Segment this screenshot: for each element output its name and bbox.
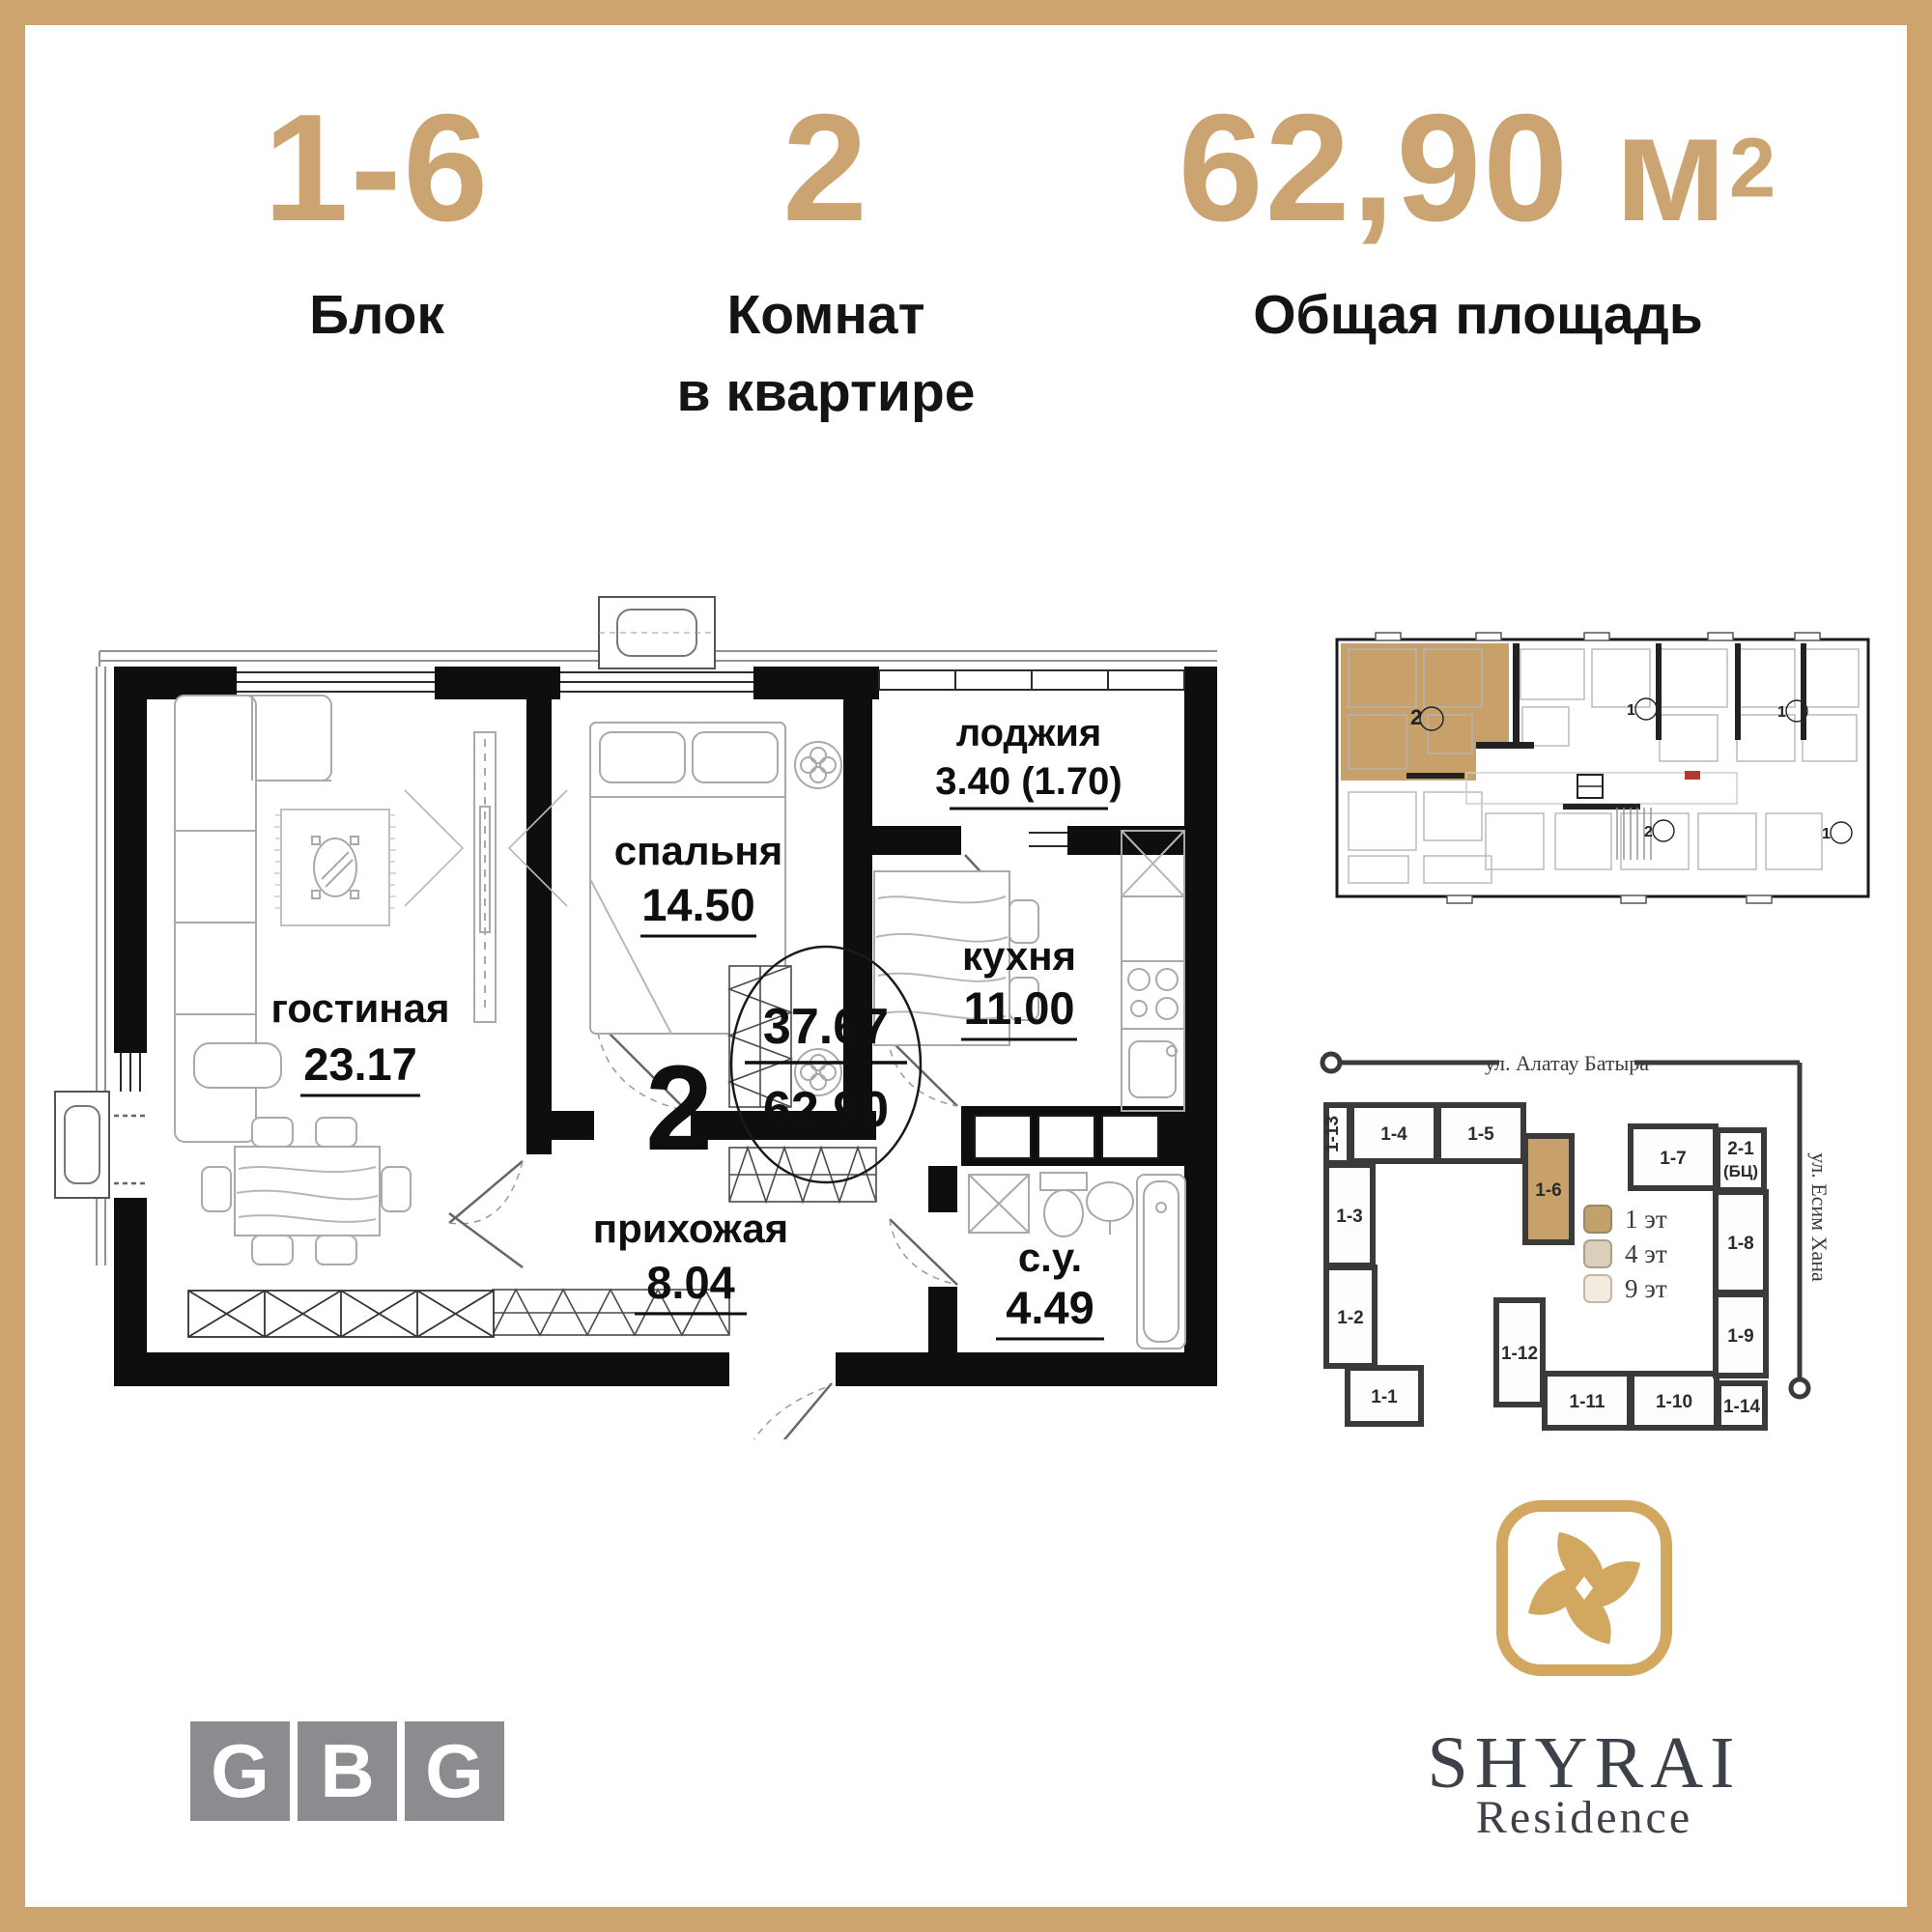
gbg-letter-g1: G — [190, 1721, 290, 1821]
svg-text:1: 1 — [1627, 702, 1635, 719]
svg-text:1-8: 1-8 — [1727, 1234, 1753, 1254]
loggia-name: лоджия — [956, 712, 1101, 754]
bathroom-name: с.у. — [1018, 1235, 1082, 1280]
legend-swatch-4 — [1584, 1240, 1611, 1267]
svg-text:1-2: 1-2 — [1337, 1308, 1363, 1328]
left-service-box — [55, 1092, 109, 1198]
svg-text:(БЦ): (БЦ) — [1723, 1162, 1758, 1180]
site-plan: ул. Алатау Батыра ул. Есим Хана 1-13 1-4… — [1294, 1043, 1893, 1439]
bedroom-name: спальня — [614, 828, 782, 873]
living-area: 23.17 — [303, 1038, 417, 1090]
gbg-letter-g2: G — [405, 1721, 504, 1821]
svg-text:2: 2 — [1644, 824, 1653, 840]
flyer-canvas: 1-6 Блок 2 Комнатв квартире 62,90 м2 Общ… — [0, 0, 1932, 1932]
svg-text:1: 1 — [1777, 704, 1786, 721]
street-top-label: ул. Алатау Батыра — [1485, 1051, 1649, 1075]
stat-area: 62,90 м2 Общая площадь — [1121, 92, 1835, 355]
svg-text:1: 1 — [1822, 826, 1831, 842]
sideboard — [188, 1291, 494, 1337]
svg-text:1-10: 1-10 — [1656, 1392, 1692, 1412]
floors-legend: 1 эт 4 эт 9 эт — [1584, 1205, 1667, 1303]
stat-block: 1-6 Блок — [164, 92, 589, 355]
svg-text:1-14: 1-14 — [1723, 1397, 1760, 1417]
legend-swatch-1 — [1584, 1206, 1611, 1233]
stat-block-label: Блок — [164, 277, 589, 355]
hallway-name: прихожая — [593, 1206, 788, 1251]
svg-text:1-9: 1-9 — [1727, 1326, 1753, 1347]
level-plan: 2 1 1 2 1 — [1331, 628, 1874, 908]
kitchen-name: кухня — [962, 933, 1076, 979]
svg-text:1-5: 1-5 — [1467, 1124, 1494, 1145]
hallway-area: 8.04 — [646, 1257, 734, 1308]
legend-swatch-9 — [1584, 1275, 1611, 1302]
shyrai-ornament-icon — [1495, 1499, 1673, 1677]
svg-text:1-12: 1-12 — [1501, 1344, 1538, 1364]
total-area: 62.90 — [763, 1082, 889, 1138]
stat-area-value: 62,90 м2 — [1121, 92, 1835, 244]
svg-text:1-13: 1-13 — [1322, 1116, 1343, 1152]
gbg-logo: G B G — [190, 1721, 504, 1821]
stat-area-label: Общая площадь — [1121, 277, 1835, 355]
svg-text:9 эт: 9 эт — [1625, 1274, 1667, 1303]
gbg-letter-b: B — [298, 1721, 397, 1821]
utility-cabinets — [975, 1116, 1158, 1158]
living-name: гостиная — [270, 985, 449, 1031]
bathroom-area: 4.49 — [1006, 1282, 1094, 1333]
rooms-count: 2 — [645, 1041, 713, 1176]
svg-text:1 эт: 1 эт — [1625, 1205, 1667, 1234]
bedroom-area: 14.50 — [641, 879, 755, 930]
stat-rooms-value: 2 — [623, 92, 1029, 244]
svg-text:1-3: 1-3 — [1336, 1207, 1362, 1227]
svg-text:1-4: 1-4 — [1380, 1124, 1407, 1145]
svg-text:1-1: 1-1 — [1371, 1387, 1398, 1407]
svg-text:4 эт: 4 эт — [1625, 1239, 1667, 1268]
street-right-label: ул. Есим Хана — [1807, 1152, 1832, 1282]
stat-rooms: 2 Комнатв квартире — [623, 92, 1029, 432]
svg-text:1-11: 1-11 — [1570, 1392, 1605, 1412]
shyrai-subtitle: Residence — [1372, 1791, 1797, 1844]
stat-rooms-label: Комнатв квартире — [623, 277, 1029, 432]
loggia-area: 3.40 (1.70) — [935, 760, 1122, 803]
living-area-total: 37.67 — [763, 999, 889, 1055]
svg-text:2-1: 2-1 — [1727, 1139, 1754, 1159]
stat-block-value: 1-6 — [164, 92, 589, 244]
kitchen-area: 11.00 — [963, 982, 1074, 1034]
svg-text:1-6: 1-6 — [1535, 1180, 1561, 1201]
exit-sign — [1685, 771, 1700, 780]
top-service-box — [599, 597, 715, 668]
svg-text:1-7: 1-7 — [1660, 1149, 1686, 1169]
apartment-floor-plan: гостиная 23.17 спальня 14.50 лоджия 3.40… — [53, 589, 1256, 1439]
site-blocks — [1326, 1105, 1766, 1428]
